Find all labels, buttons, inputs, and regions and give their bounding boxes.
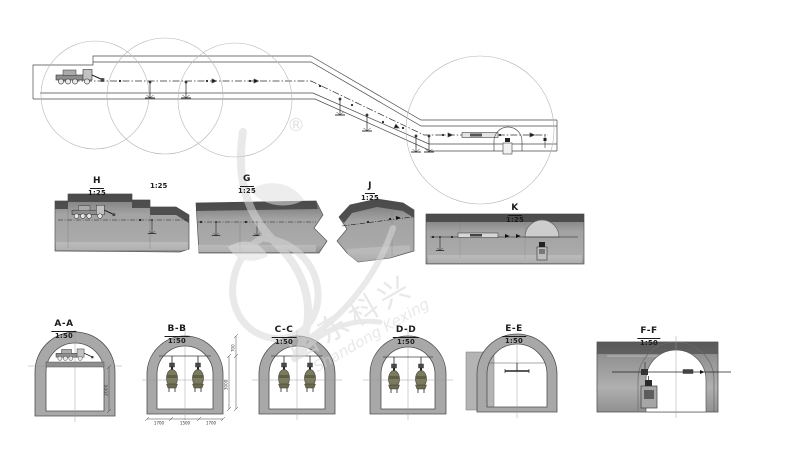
hanging-sprayer [416,357,427,393]
hanger-symbol [424,135,434,152]
section-title-ff: F-F 1:50 [637,320,660,347]
dim-text-bb-left: 1700 [154,421,165,426]
hanging-sprayer [167,356,178,392]
hanging-sprayer [279,356,290,392]
ventilation-device [505,363,529,373]
hanger-symbol [362,114,372,131]
section-bb: 3000 700 1700 1500 1700 [142,330,238,426]
hanging-sprayer [193,356,204,392]
dim-text-bb-center: 1500 [180,421,191,426]
detail-title-g: G 1:25 [238,168,256,195]
section-title-dd: D-D 1:50 [393,319,419,346]
detail-title-j: J 1:25 [361,175,379,202]
callout-circle-1 [41,41,149,149]
callout-circle-4 [406,56,554,204]
profile-h [55,194,189,252]
hanging-sprayer [389,357,400,393]
anchor-dot [139,219,141,221]
direction-arrow [448,133,453,137]
section-title-aa: A-A 1:50 [51,313,76,340]
callout-circle-3 [178,43,292,157]
section-aa: 2000 [28,330,122,422]
detail-title-h: H 1:25 [88,170,106,197]
section-ee [466,334,557,418]
dim-text-aa-height: 2000 [104,384,110,396]
drawing-sheet: 2000 3000 700 1700 1500 1700 [0,0,800,450]
plan-right-equipment [462,127,547,154]
callout-circle-2 [107,38,223,154]
hanger-symbol [145,81,155,98]
profile-k-floor-strip [428,255,582,263]
section-title-cc: C-C 1:50 [272,319,297,346]
section-ff [597,336,731,418]
dim-text-bb-right: 1700 [206,421,217,426]
direction-arrow [530,133,535,137]
cad-drawing: 2000 3000 700 1700 1500 1700 [0,0,800,450]
tunnel-roof-slope-line [311,56,557,120]
floating-scale-label: 1:25 [150,182,167,190]
hanger-symbol [411,135,421,152]
profile-j [337,199,414,262]
drill-rig-truck-section [56,349,93,360]
direction-arrow [254,79,259,83]
registered-mark: ® [287,115,305,136]
detail-title-k: K 1:25 [506,197,524,224]
direction-arrow [212,79,217,83]
hanger-symbol [181,81,191,98]
tunnel-roof-inner-line [93,62,557,126]
drill-rig-truck-plan [56,70,104,85]
control-cabinet [503,143,512,154]
dim-text-bb-upper: 700 [231,344,236,352]
anchor-dots [119,80,501,136]
dim-text-bb-total: 3000 [224,379,229,390]
section-title-ee: E-E 1:50 [502,318,526,345]
profile-h-floor-strip [56,242,188,250]
section-title-bb: B-B 1:50 [165,318,190,345]
platform-slab [46,362,104,367]
